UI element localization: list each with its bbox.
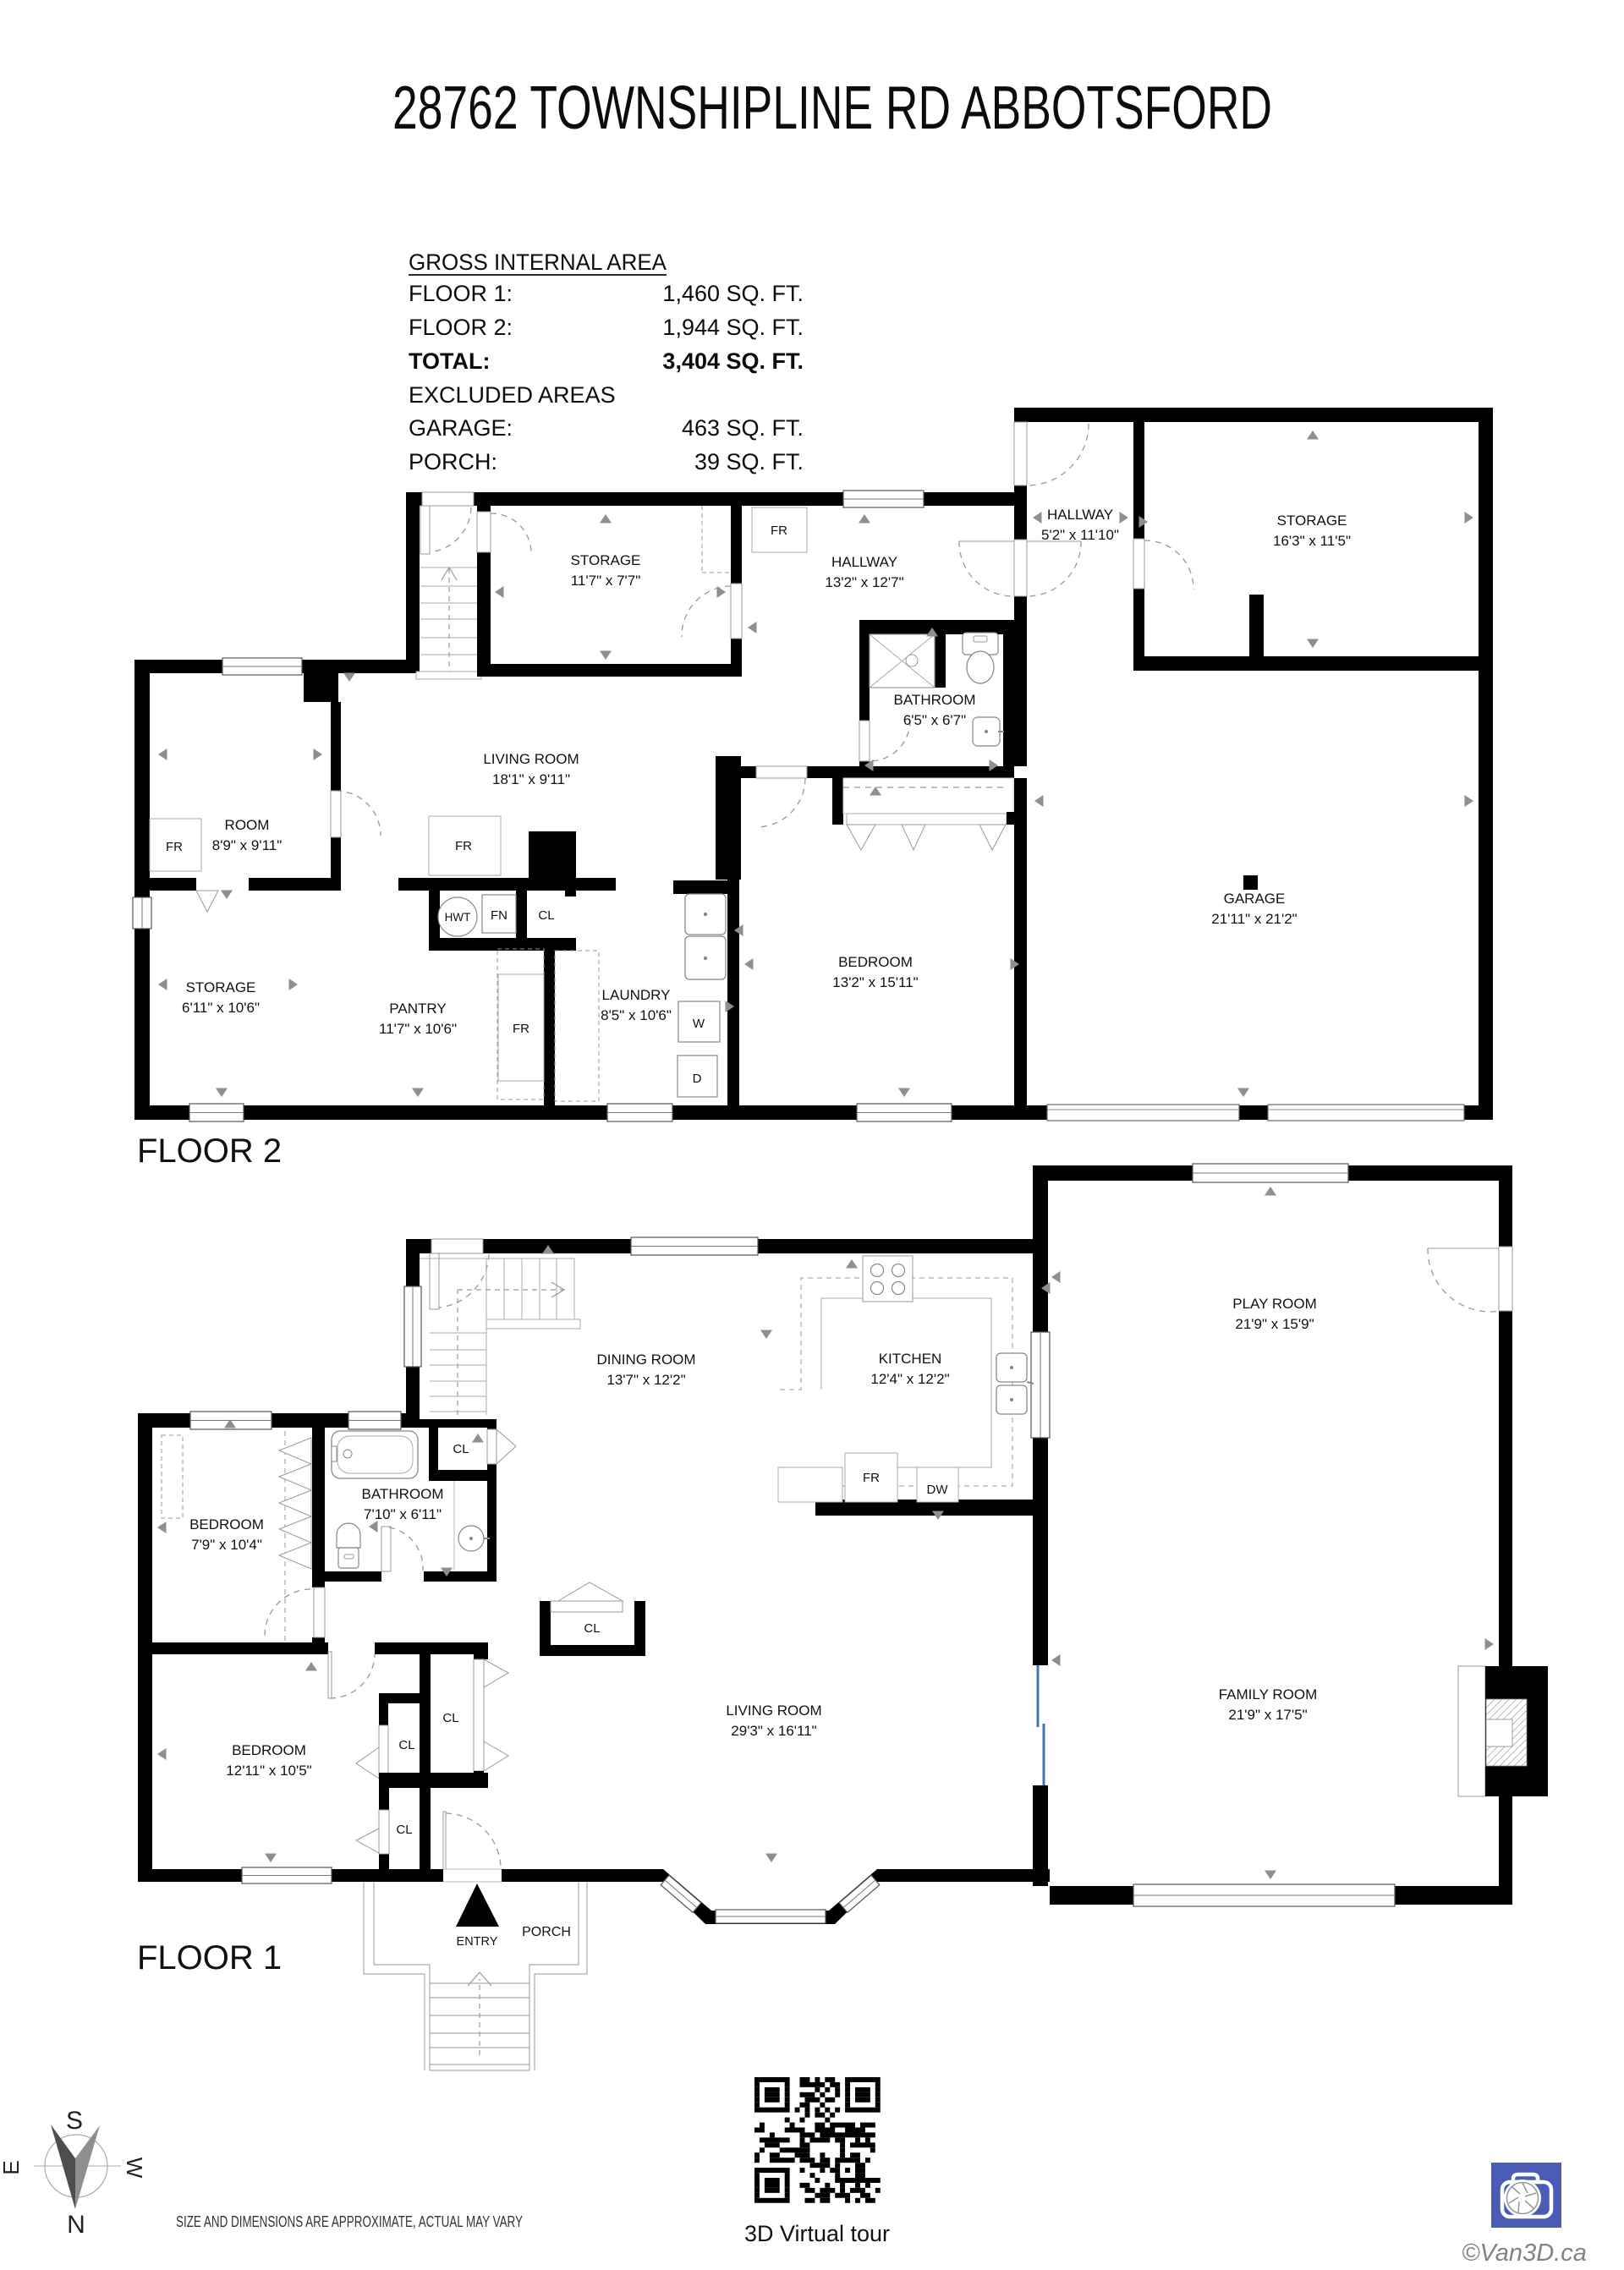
svg-text:©Van3D.ca: ©Van3D.ca — [1462, 2240, 1587, 2267]
svg-text:FN: FN — [491, 908, 507, 923]
svg-text:HALLWAY: HALLWAY — [831, 554, 897, 570]
svg-text:CL: CL — [398, 1738, 414, 1752]
svg-text:BATHROOM: BATHROOM — [894, 692, 976, 708]
svg-text:21'9" x 17'5": 21'9" x 17'5" — [1228, 1707, 1307, 1723]
svg-text:ROOM: ROOM — [225, 817, 270, 833]
svg-text:BEDROOM: BEDROOM — [232, 1742, 306, 1758]
svg-text:3D Virtual tour: 3D Virtual tour — [744, 2221, 890, 2246]
svg-text:FAMILY ROOM: FAMILY ROOM — [1219, 1686, 1318, 1702]
svg-text:6'5" x 6'7": 6'5" x 6'7" — [903, 712, 966, 728]
svg-text:11'7" x 10'6": 11'7" x 10'6" — [379, 1021, 457, 1037]
svg-text:18'1" x 9'11": 18'1" x 9'11" — [492, 771, 570, 787]
svg-text:CL: CL — [584, 1621, 600, 1636]
svg-text:5'2" x 11'10": 5'2" x 11'10" — [1041, 527, 1119, 543]
svg-text:GARAGE: GARAGE — [1224, 891, 1286, 907]
svg-text:29'3" x 16'11": 29'3" x 16'11" — [731, 1723, 816, 1739]
svg-text:BEDROOM: BEDROOM — [838, 954, 913, 970]
svg-text:EXCLUDED AREAS: EXCLUDED AREAS — [409, 382, 616, 408]
svg-text:CL: CL — [453, 1442, 469, 1456]
svg-text:FR: FR — [863, 1471, 880, 1485]
svg-text:FR: FR — [771, 524, 787, 538]
svg-text:LIVING ROOM: LIVING ROOM — [483, 751, 579, 767]
svg-text:16'3" x 11'5": 16'3" x 11'5" — [1273, 533, 1351, 549]
svg-text:21'9" x 15'9": 21'9" x 15'9" — [1235, 1316, 1314, 1332]
svg-text:SIZE AND DIMENSIONS ARE APPROX: SIZE AND DIMENSIONS ARE APPROXIMATE, ACT… — [176, 2213, 523, 2230]
svg-text:7'9" x 10'4": 7'9" x 10'4" — [191, 1537, 262, 1553]
svg-text:BEDROOM: BEDROOM — [189, 1516, 264, 1533]
svg-text:E: E — [0, 2160, 24, 2174]
svg-text:1,460 SQ. FT.: 1,460 SQ. FT. — [662, 281, 804, 306]
svg-text:463 SQ. FT.: 463 SQ. FT. — [682, 415, 804, 441]
svg-text:13'2" x 12'7": 13'2" x 12'7" — [825, 574, 903, 590]
svg-text:FLOOR 2:: FLOOR 2: — [409, 315, 513, 340]
svg-text:12'4" x 12'2": 12'4" x 12'2" — [870, 1371, 949, 1387]
svg-text:FLOOR 1: FLOOR 1 — [137, 1939, 282, 1977]
svg-text:LAUNDRY: LAUNDRY — [602, 987, 671, 1003]
svg-text:FLOOR 2: FLOOR 2 — [137, 1132, 282, 1170]
svg-text:PORCH:: PORCH: — [409, 449, 497, 474]
svg-text:13'2" x 15'11": 13'2" x 15'11" — [832, 974, 918, 990]
svg-text:ENTRY: ENTRY — [457, 1935, 498, 1949]
svg-text:BATHROOM: BATHROOM — [362, 1486, 444, 1502]
svg-text:13'7" x 12'2": 13'7" x 12'2" — [606, 1372, 685, 1388]
svg-text:3,404 SQ. FT.: 3,404 SQ. FT. — [662, 348, 804, 374]
svg-text:12'11" x 10'5": 12'11" x 10'5" — [226, 1763, 311, 1779]
svg-text:11'7" x 7'7": 11'7" x 7'7" — [571, 573, 641, 589]
svg-text:GARAGE:: GARAGE: — [409, 415, 513, 441]
svg-text:7'10" x 6'11": 7'10" x 6'11" — [364, 1506, 442, 1522]
svg-text:HWT: HWT — [445, 911, 471, 924]
svg-text:KITCHEN: KITCHEN — [879, 1351, 942, 1367]
svg-text:CL: CL — [396, 1823, 412, 1837]
svg-text:W: W — [122, 2158, 147, 2179]
svg-text:8'5" x 10'6": 8'5" x 10'6" — [601, 1007, 672, 1023]
svg-text:CL: CL — [442, 1711, 458, 1725]
svg-text:LIVING ROOM: LIVING ROOM — [726, 1702, 821, 1719]
svg-text:PORCH: PORCH — [522, 1925, 571, 1939]
svg-text:CL: CL — [538, 908, 554, 923]
svg-text:28762 TOWNSHIPLINE RD ABBOTSFO: 28762 TOWNSHIPLINE RD ABBOTSFORD — [392, 74, 1272, 142]
svg-text:TOTAL:: TOTAL: — [409, 348, 490, 374]
svg-text:STORAGE: STORAGE — [1277, 513, 1347, 529]
svg-text:1,944 SQ. FT.: 1,944 SQ. FT. — [662, 315, 804, 340]
svg-text:FLOOR 1:: FLOOR 1: — [409, 281, 513, 306]
svg-text:8'9" x 9'11": 8'9" x 9'11" — [212, 837, 283, 853]
svg-text:HALLWAY: HALLWAY — [1047, 507, 1113, 523]
svg-text:N: N — [67, 2211, 85, 2239]
svg-text:FR: FR — [513, 1022, 529, 1036]
svg-text:D: D — [693, 1072, 702, 1086]
svg-text:PANTRY: PANTRY — [389, 1001, 446, 1017]
svg-text:DINING ROOM: DINING ROOM — [596, 1352, 695, 1368]
svg-text:W: W — [693, 1017, 705, 1031]
svg-text:39 SQ. FT.: 39 SQ. FT. — [694, 449, 804, 474]
svg-text:PLAY ROOM: PLAY ROOM — [1232, 1296, 1317, 1312]
svg-text:STORAGE: STORAGE — [186, 979, 256, 995]
svg-text:6'11" x 10'6": 6'11" x 10'6" — [182, 1000, 260, 1016]
svg-text:S: S — [66, 2107, 83, 2135]
svg-text:STORAGE: STORAGE — [571, 552, 641, 568]
svg-text:21'11" x 21'2": 21'11" x 21'2" — [1211, 911, 1297, 927]
svg-text:GROSS INTERNAL AREA: GROSS INTERNAL AREA — [409, 249, 667, 275]
svg-text:FR: FR — [166, 840, 183, 854]
svg-text:DW: DW — [927, 1483, 949, 1497]
svg-text:FR: FR — [455, 839, 472, 853]
